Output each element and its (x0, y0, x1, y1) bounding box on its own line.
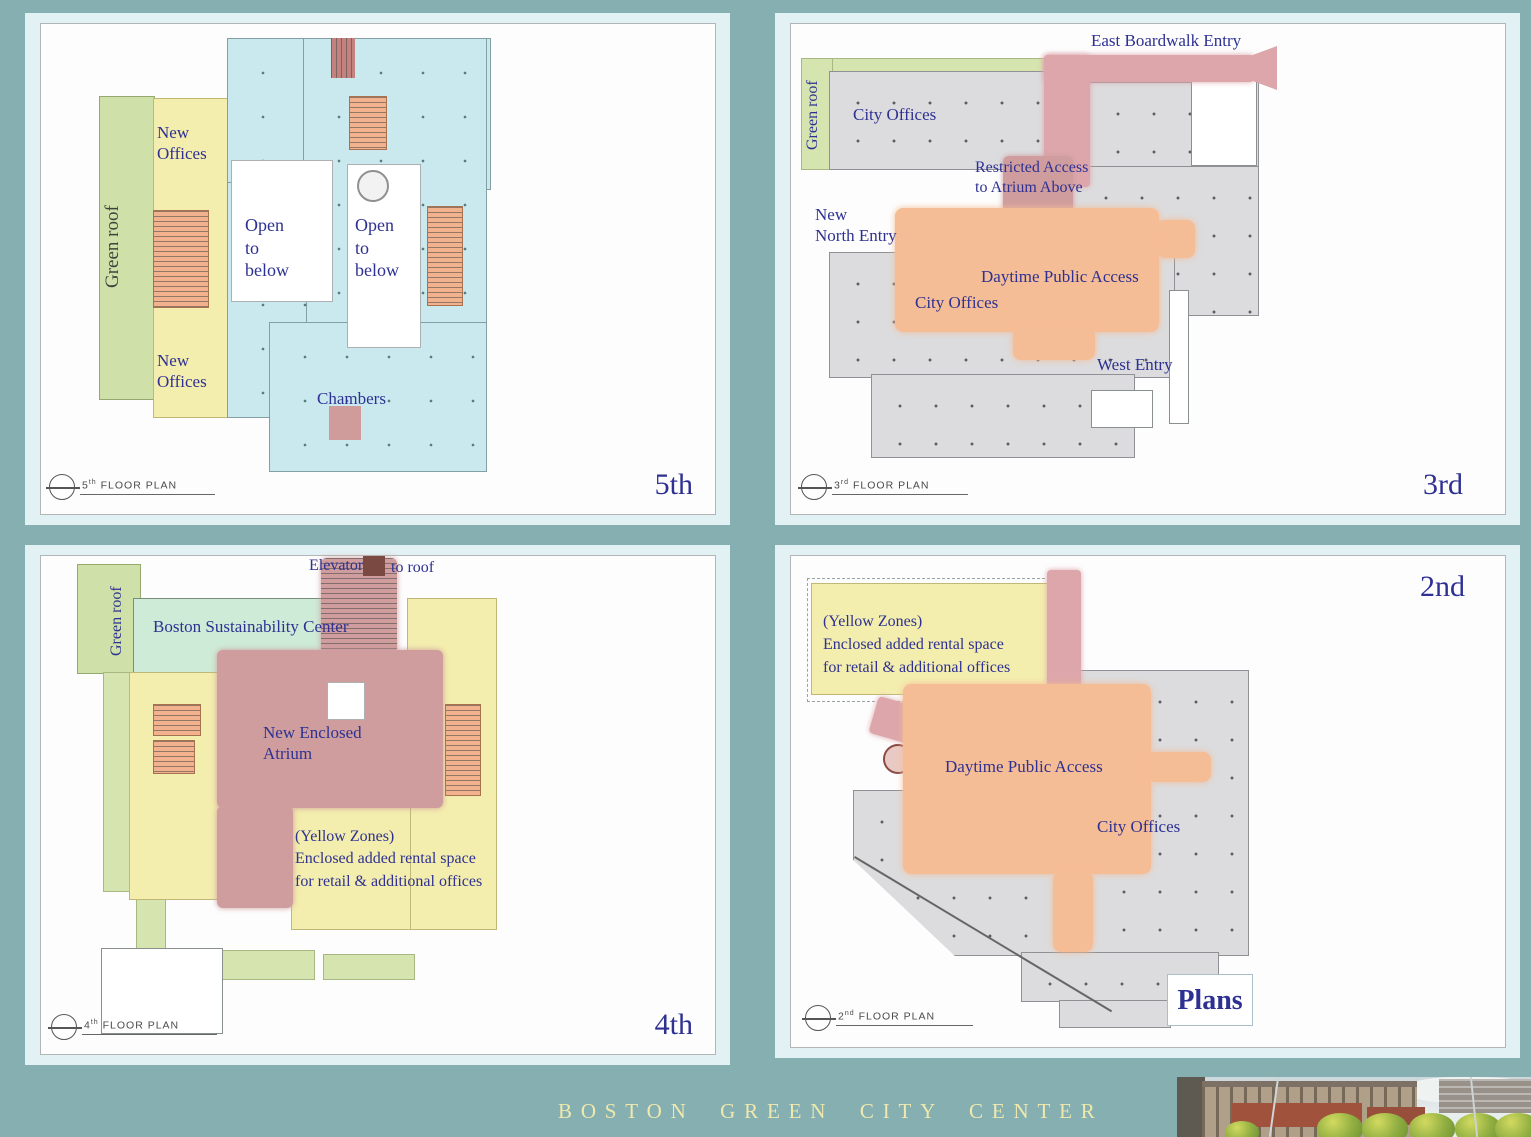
label-elevator: Elevator (309, 556, 363, 576)
label-yellow-zones-note: (Yellow Zones) Enclosed added rental spa… (295, 826, 482, 893)
label-chambers: Chambers (317, 388, 386, 409)
label-city-offices: City Offices (1097, 816, 1180, 837)
label-east-boardwalk-entry: East Boardwalk Entry (1091, 30, 1241, 51)
label-open-to-below-right: Open to below (355, 214, 399, 282)
zone-public-access-arm (1147, 752, 1211, 782)
photo-right-building (1439, 1079, 1531, 1113)
photo-tree (1225, 1121, 1259, 1137)
plan-sheet-4th: Elevator to roof Green roof Boston Susta… (40, 555, 716, 1055)
zone-elevator-core (331, 38, 355, 78)
stamp-3rd-floor-plan: 3rd FLOOR PLAN (801, 474, 968, 500)
stairs (1091, 390, 1153, 428)
panel-4th-floor: Elevator to roof Green roof Boston Susta… (25, 545, 730, 1065)
photo-tree (1317, 1113, 1363, 1137)
stamp-4th-floor-plan: 4th FLOOR PLAN (51, 1014, 217, 1040)
label-to-roof: to roof (391, 558, 434, 578)
plan-sheet-2nd: 2nd (Yellow Zones) Enclosed added rental… (790, 555, 1506, 1048)
zone-public-access-arm (1013, 328, 1095, 360)
floor-number-5th: 5th (655, 468, 693, 502)
stamp-text: 3rd FLOOR PLAN (832, 479, 968, 495)
zone-elevator-bank (445, 704, 481, 796)
section-marker-icon (51, 1014, 77, 1040)
zone-green-terrace (323, 954, 415, 980)
section-marker-icon (805, 1005, 831, 1031)
photo-tree (1495, 1113, 1531, 1137)
label-plans: Plans (1177, 983, 1242, 1018)
label-open-to-below-left: Open to below (245, 214, 289, 282)
panel-2nd-floor: 2nd (Yellow Zones) Enclosed added rental… (775, 545, 1520, 1058)
plan-sheet-3rd: East Boardwalk Entry Green roof City Off… (790, 23, 1506, 515)
label-daytime-public-access: Daytime Public Access (981, 266, 1139, 287)
zone-atrium-path (1047, 570, 1081, 688)
presentation-board: Green roof New Offices New Offices Open … (0, 0, 1531, 1137)
plans-title-box: Plans (1167, 974, 1253, 1026)
floor-number-4th: 4th (655, 1008, 693, 1042)
label-yellow-zones-note: (Yellow Zones) Enclosed added rental spa… (823, 610, 1010, 680)
stamp-2nd-floor-plan: 2nd FLOOR PLAN (805, 1005, 973, 1031)
zone-stair-core (153, 740, 195, 774)
zone-public-access-arm (1157, 220, 1195, 258)
zone-floor-area (1059, 1000, 1171, 1028)
photo-tree (1455, 1113, 1501, 1137)
label-west-entry: West Entry (1097, 354, 1173, 375)
zone-stair-core (153, 210, 209, 308)
zone-stair-core (349, 96, 387, 150)
stamp-text: 4th FLOOR PLAN (82, 1019, 217, 1035)
photo-dark-tower (1177, 1077, 1205, 1137)
section-marker-icon (49, 474, 75, 500)
zone-daytime-public-access (903, 684, 1151, 874)
label-green-roof: Green roof (101, 142, 125, 352)
board-title: BOSTON GREEN CITY CENTER (558, 1099, 1104, 1124)
label-new-north-entry: New North Entry (815, 204, 897, 247)
boardwalk-ramp (1191, 72, 1257, 166)
photo-boston-city-hall (1177, 1077, 1531, 1137)
photo-tree (1409, 1113, 1455, 1137)
zone-stair-core (153, 704, 201, 736)
panel-3rd-floor: East Boardwalk Entry Green roof City Off… (775, 13, 1520, 525)
label-new-enclosed-atrium: New Enclosed Atrium (263, 722, 362, 765)
label-new-offices-top: New Offices (157, 122, 207, 165)
escalator-icon (357, 170, 389, 202)
elevator-shaft-icon (363, 556, 385, 576)
floor-number-3rd: 3rd (1423, 468, 1463, 502)
panel-5th-floor: Green roof New Offices New Offices Open … (25, 13, 730, 525)
label-green-roof: Green roof (107, 570, 127, 672)
section-marker-icon (801, 474, 827, 500)
zone-atrium-opening (327, 682, 365, 720)
zone-public-access-stem (1053, 872, 1093, 952)
zone-elevator-bank (427, 206, 463, 306)
plan-sheet-5th: Green roof New Offices New Offices Open … (40, 23, 716, 515)
floor-number-2nd: 2nd (1420, 570, 1465, 604)
label-new-offices-bottom: New Offices (157, 350, 207, 393)
label-restricted-access: Restricted Access to Atrium Above (975, 158, 1088, 198)
photo-tree (1362, 1113, 1408, 1137)
label-city-offices-top: City Offices (853, 104, 936, 125)
stamp-text: 2nd FLOOR PLAN (836, 1010, 973, 1026)
label-daytime-public-access: Daytime Public Access (945, 756, 1103, 777)
zone-atrium-stem (217, 806, 293, 908)
stamp-5th-floor-plan: 5th FLOOR PLAN (49, 474, 215, 500)
label-sustainability-center: Boston Sustainability Center (153, 616, 349, 637)
label-city-offices-bottom: City Offices (915, 292, 998, 313)
label-green-roof: Green roof (803, 64, 823, 166)
stamp-text: 5th FLOOR PLAN (80, 479, 215, 495)
zone-chambers (329, 406, 361, 440)
